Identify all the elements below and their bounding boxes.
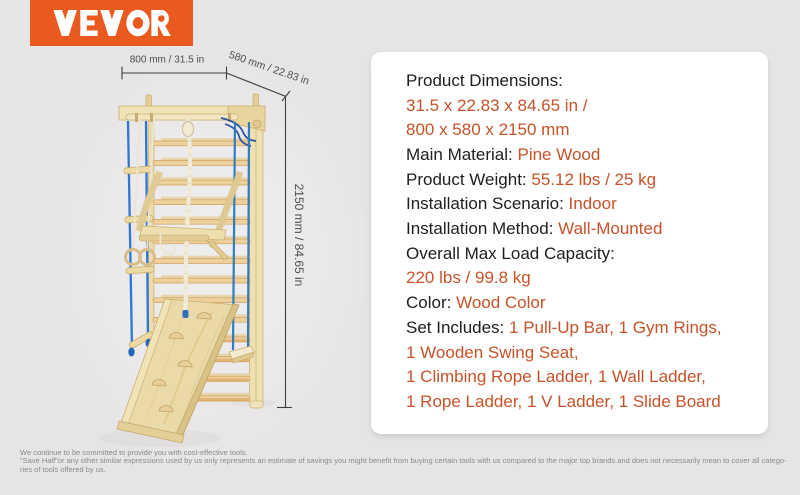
svg-text:580 mm / 22.83 in: 580 mm / 22.83 in <box>227 49 311 88</box>
svg-text:2150 mm / 84.65 in: 2150 mm / 84.65 in <box>292 184 306 287</box>
svg-text:800 mm / 31.5 in: 800 mm / 31.5 in <box>130 55 204 66</box>
